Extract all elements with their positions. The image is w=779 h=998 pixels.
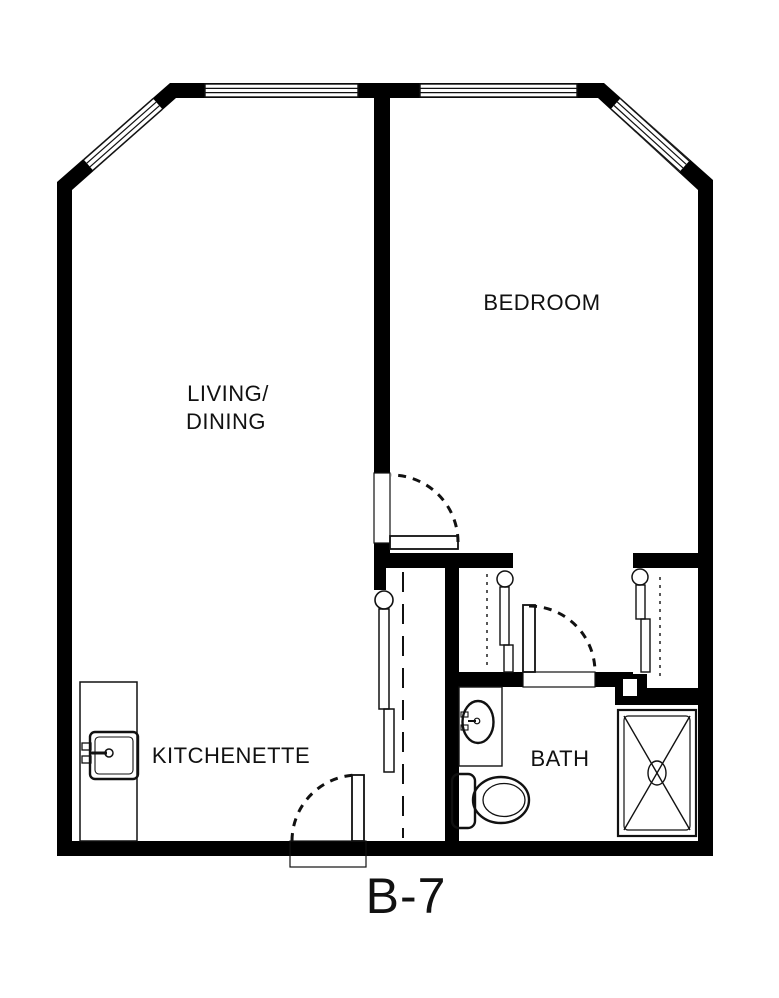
wall-shower-north	[645, 688, 698, 705]
room-label-bath: BATH	[530, 746, 589, 771]
floor-plan-page: LIVING/ DINING BEDROOM KITCHENETTE BATH …	[0, 0, 779, 998]
window-top-right-icon	[420, 84, 577, 97]
room-label-bedroom: BEDROOM	[483, 290, 600, 315]
room-label-living: LIVING/	[187, 381, 269, 406]
wall-closet-jamb-stub	[374, 568, 386, 590]
wall-bedroom-south-west	[374, 553, 513, 568]
room-label-dining: DINING	[186, 409, 266, 434]
room-label-kitchenette: KITCHENETTE	[152, 743, 310, 768]
wall-bath-north-west	[445, 672, 523, 687]
wall-bedroom-south-east	[633, 553, 698, 568]
floor-plan: LIVING/ DINING BEDROOM KITCHENETTE BATH …	[0, 0, 779, 998]
unit-label: B-7	[366, 868, 447, 924]
wall-living-bedroom	[374, 98, 390, 473]
wall-notch	[623, 679, 637, 696]
window-top-left-icon	[205, 84, 358, 97]
